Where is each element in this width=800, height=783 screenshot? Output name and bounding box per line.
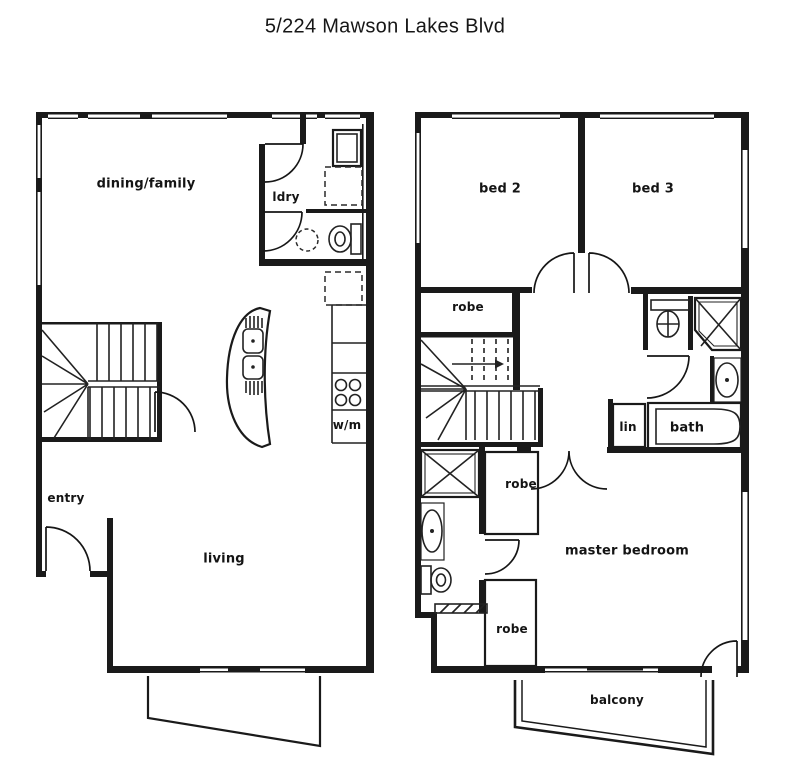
floor-plan-drawing bbox=[0, 0, 800, 783]
room-label-balcony: balcony bbox=[590, 693, 644, 707]
door bbox=[647, 356, 689, 398]
floor-plan-scan: 5/224 Mawson Lakes Blvd dining/family ld… bbox=[0, 0, 800, 783]
toilet-icon bbox=[421, 566, 451, 594]
robe-outline bbox=[485, 452, 538, 534]
window bbox=[36, 125, 42, 285]
balcony-outline bbox=[515, 680, 713, 754]
room-label-dining-family: dining/family bbox=[97, 177, 196, 192]
entry-door bbox=[46, 527, 90, 571]
fridge-space bbox=[325, 272, 362, 305]
floor-waste bbox=[296, 229, 318, 251]
room-label-linen: lin bbox=[619, 420, 636, 434]
room-label-robe-hall: robe bbox=[505, 477, 537, 491]
ground-floor-plan bbox=[36, 112, 374, 746]
basin-icon bbox=[714, 358, 741, 402]
room-label-robe-master: robe bbox=[496, 622, 528, 636]
room-label-bed2: bed 2 bbox=[479, 182, 521, 197]
room-label-master-bedroom: master bedroom bbox=[565, 544, 689, 559]
shower-icon bbox=[695, 298, 741, 350]
window bbox=[545, 666, 658, 673]
laundry-trough bbox=[333, 130, 361, 166]
staircase bbox=[421, 339, 540, 440]
page-title: 5/224 Mawson Lakes Blvd bbox=[265, 16, 505, 39]
cooktop bbox=[336, 380, 361, 406]
room-label-robe-bed2: robe bbox=[452, 300, 484, 314]
courtyard-outline bbox=[148, 676, 320, 746]
door bbox=[485, 540, 519, 574]
basin-icon bbox=[421, 503, 444, 560]
room-label-entry: entry bbox=[47, 491, 84, 505]
room-label-living: living bbox=[203, 552, 245, 567]
kitchen-island-sink bbox=[227, 308, 270, 447]
door bbox=[534, 253, 629, 293]
toilet-icon bbox=[329, 224, 361, 254]
room-label-laundry: ldry bbox=[272, 190, 299, 204]
window bbox=[48, 112, 360, 119]
door bbox=[531, 451, 607, 489]
room-label-bed3: bed 3 bbox=[632, 182, 674, 197]
appliance-space bbox=[325, 167, 362, 205]
room-label-washing-machine: w/m bbox=[333, 418, 362, 432]
toilet-icon bbox=[651, 300, 689, 337]
window bbox=[200, 666, 305, 673]
window bbox=[415, 133, 421, 243]
room-label-bath: bath bbox=[670, 421, 704, 436]
staircase bbox=[42, 323, 160, 440]
shower-icon bbox=[421, 450, 479, 497]
